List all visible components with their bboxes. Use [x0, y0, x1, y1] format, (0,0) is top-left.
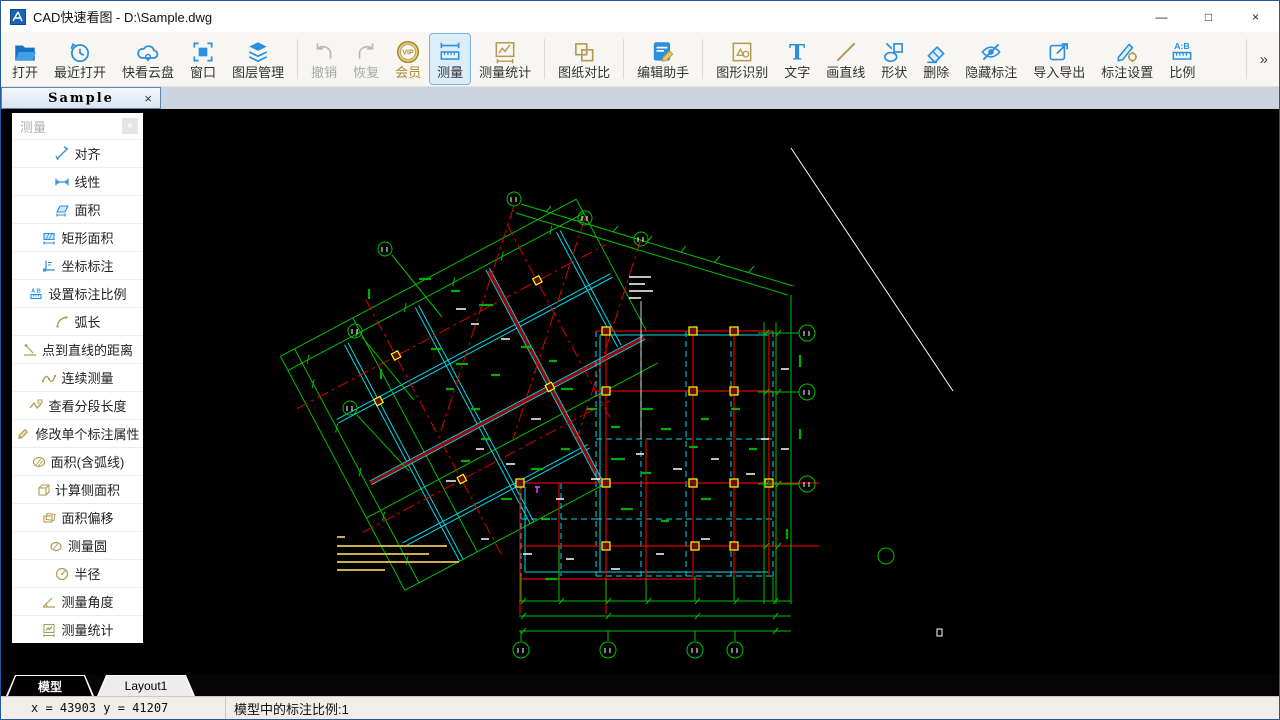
panel-item-label: 面积 [74, 200, 100, 219]
app-window: CAD快速看图 - D:\Sample.dwg — □ × 打开 最近打开 [0, 0, 1280, 720]
minimize-button[interactable]: — [1138, 1, 1185, 32]
sheet-tab-bar: 模型 Layout1 [1, 675, 1279, 696]
layers-icon [245, 39, 271, 65]
window-select-icon [190, 39, 216, 65]
toolbar-button-measure-stats[interactable]: 测量统计 [471, 33, 539, 85]
scale-ratio-icon: A:B [1169, 39, 1195, 65]
toolbar-button-label: 窗口 [190, 65, 216, 80]
area-arc-icon [31, 454, 47, 470]
toolbar-button-label: 编辑助手 [637, 65, 689, 80]
panel-item-label: 矩形面积 [61, 228, 113, 247]
toolbar-separator [623, 39, 624, 79]
toolbar-button-scale[interactable]: A:B 比例 [1161, 33, 1203, 85]
toolbar-button-label: 测量统计 [479, 65, 531, 80]
toolbar-button-text[interactable]: T 文字 [776, 33, 818, 85]
toolbar-button-label: 最近打开 [54, 65, 106, 80]
toolbar-button-label: 撤销 [311, 65, 337, 80]
status-bar: x = 43903 y = 41207 模型中的标注比例:1 [1, 696, 1279, 719]
panel-item-continuous-measure[interactable]: 连续测量 [12, 363, 143, 391]
drawing-compare-icon [571, 39, 597, 65]
annotation-settings-icon [1114, 39, 1140, 65]
measure-stats-icon [492, 39, 518, 65]
panel-item-label: 对齐 [74, 144, 100, 163]
measure-circle-icon [48, 538, 64, 554]
point-line-distance-icon [22, 342, 38, 358]
window-controls: — □ × [1138, 1, 1279, 32]
toolbar-button-label: 画直线 [826, 65, 865, 80]
panel-item-label: 连续测量 [61, 368, 113, 387]
toolbar-button-import-export[interactable]: 导入导出 [1025, 33, 1093, 85]
panel-item-label: 设置标注比例 [48, 284, 126, 303]
toolbar-button-line[interactable]: 画直线 [818, 33, 873, 85]
area-offset-icon [41, 510, 57, 526]
panel-item-align[interactable]: 对齐 [12, 139, 143, 167]
main-toolbar: 打开 最近打开 快看云盘 窗口 [1, 32, 1279, 87]
toolbar-button-compare[interactable]: 图纸对比 [550, 33, 618, 85]
panel-item-label: 半径 [74, 564, 100, 583]
panel-item-area-offset[interactable]: 面积偏移 [12, 503, 143, 531]
svg-text:VIP: VIP [402, 49, 414, 56]
toolbar-separator [1246, 39, 1247, 79]
sheet-tab-label: Layout1 [125, 679, 168, 693]
panel-close-icon[interactable]: × [122, 118, 138, 134]
segment-length-icon [28, 398, 44, 414]
align-measure-icon [54, 146, 70, 162]
toolbar-button-label: 打开 [12, 65, 38, 80]
toolbar-button-cloud[interactable]: 快看云盘 [114, 33, 182, 85]
panel-item-point-to-line[interactable]: 点到直线的距离 [12, 335, 143, 363]
sheet-tab-model[interactable]: 模型 [6, 675, 94, 696]
toolbar-button-label: 恢复 [353, 65, 379, 80]
panel-item-label: 弧长 [74, 312, 100, 331]
toolbar-button-label: 图层管理 [232, 65, 284, 80]
panel-item-label: 测量角度 [61, 592, 113, 611]
panel-item-label: 测量统计 [61, 620, 113, 639]
panel-item-label: 线性 [74, 172, 100, 191]
toolbar-button-label: 快看云盘 [122, 65, 174, 80]
toolbar-button-undo: 撤销 [303, 33, 345, 85]
undo-icon [311, 39, 337, 65]
toolbar-button-label: 比例 [1169, 65, 1195, 80]
arc-length-icon [54, 314, 70, 330]
toolbar-button-redo: 恢复 [345, 33, 387, 85]
panel-item-side-area[interactable]: 计算侧面积 [12, 475, 143, 503]
linear-measure-icon [54, 174, 70, 190]
panel-item-label: 测量圆 [68, 536, 107, 555]
measure-stats-icon [41, 622, 57, 638]
angle-icon [41, 594, 57, 610]
toolbar-separator [702, 39, 703, 79]
document-tab-strip: Sample × [1, 87, 1279, 109]
edit-assistant-icon [650, 39, 676, 65]
toolbar-button-label: 删除 [923, 65, 949, 80]
app-icon [10, 9, 26, 25]
panel-item-label: 面积偏移 [61, 508, 113, 527]
panel-item-label: 查看分段长度 [48, 396, 126, 415]
redo-icon [353, 39, 379, 65]
panel-item-area-with-arc[interactable]: 面积(含弧线) [12, 447, 143, 475]
window-title: CAD快速看图 - D:\Sample.dwg [33, 7, 212, 26]
toolbar-button-shapes[interactable]: 形状 [873, 33, 915, 85]
continuous-measure-icon [41, 370, 57, 386]
close-button[interactable]: × [1232, 1, 1279, 32]
toolbar-button-recent[interactable]: 最近打开 [46, 33, 114, 85]
panel-item-segment-length[interactable]: 查看分段长度 [12, 391, 143, 419]
toolbar-button-label: 测量 [437, 65, 463, 80]
svg-text:T: T [789, 40, 805, 64]
cloud-drive-icon [135, 39, 161, 65]
panel-item-linear[interactable]: 线性 [12, 167, 143, 195]
document-tab-label: Sample [48, 91, 114, 106]
panel-item-label: 点到直线的距离 [42, 340, 133, 359]
recent-clock-icon [67, 39, 93, 65]
shapes-icon [881, 39, 907, 65]
toolbar-separator [544, 39, 545, 79]
panel-item-radius[interactable]: 半径 [12, 559, 143, 587]
panel-item-measure-stats[interactable]: 测量统计 [12, 615, 143, 643]
toolbar-button-recognition[interactable]: 图形识别 [708, 33, 776, 85]
toolbar-button-annotation-settings[interactable]: 标注设置 [1093, 33, 1161, 85]
toolbar-button-label: 文字 [784, 65, 810, 80]
scale-info: 模型中的标注比例:1 [226, 699, 349, 718]
svg-text:A:B: A:B [32, 288, 42, 294]
panel-item-label: 坐标标注 [61, 256, 113, 275]
sheet-tab-label: 模型 [38, 678, 62, 695]
panel-item-measure-angle[interactable]: 测量角度 [12, 587, 143, 615]
panel-item-arc-length[interactable]: 弧长 [12, 307, 143, 335]
toolbar-button-hide-annotation[interactable]: 隐藏标注 [957, 33, 1025, 85]
rect-area-icon [41, 230, 57, 246]
cursor-coordinates: x = 43903 y = 41207 [1, 701, 225, 715]
toolbar-button-layers[interactable]: 图层管理 [224, 33, 292, 85]
import-export-icon [1046, 39, 1072, 65]
panel-item-coordinate-label[interactable]: 坐标标注 [12, 251, 143, 279]
toolbar-button-label: 形状 [881, 65, 907, 80]
vip-badge-icon: VIP [395, 39, 421, 65]
panel-item-modify-label[interactable]: 修改单个标注属性 [12, 419, 143, 447]
toolbar-button-label: 导入导出 [1033, 65, 1085, 80]
toolbar-button-window[interactable]: 窗口 [182, 33, 224, 85]
radius-icon [54, 566, 70, 582]
text-tool-icon: T [784, 39, 810, 65]
edit-label-icon [15, 426, 31, 442]
toolbar-button-label: 会员 [395, 65, 421, 80]
cad-drawing [1, 109, 1279, 675]
panel-item-area[interactable]: 面积 [12, 195, 143, 223]
title-bar: CAD快速看图 - D:\Sample.dwg — □ × [1, 1, 1279, 32]
tab-close-icon[interactable]: × [144, 88, 152, 108]
panel-item-label: 面积(含弧线) [51, 452, 125, 471]
toolbar-button-measure[interactable]: 测量 [429, 33, 471, 85]
measure-ruler-icon [437, 39, 463, 65]
toolbar-button-label: 图纸对比 [558, 65, 610, 80]
drawing-canvas[interactable]: 测量 × 对齐 线性 面积 [1, 109, 1279, 675]
measure-panel-header: 测量 × [12, 113, 143, 139]
measure-panel: 测量 × 对齐 线性 面积 [12, 113, 143, 643]
measure-panel-title: 测量 [20, 117, 46, 136]
side-area-icon [35, 482, 51, 498]
panel-item-label: 修改单个标注属性 [35, 424, 139, 443]
toolbar-overflow-button[interactable]: » [1252, 51, 1276, 68]
panel-item-label: 计算侧面积 [55, 480, 120, 499]
draw-line-icon [833, 39, 859, 65]
toolbar-button-label: 隐藏标注 [965, 65, 1017, 80]
panel-item-measure-circle[interactable]: 测量圆 [12, 531, 143, 559]
document-tab-sample[interactable]: Sample × [1, 87, 161, 109]
eraser-icon [923, 39, 949, 65]
toolbar-button-assistant[interactable]: 编辑助手 [629, 33, 697, 85]
svg-text:A:B: A:B [1175, 40, 1190, 50]
panel-item-set-scale[interactable]: A:B 设置标注比例 [12, 279, 143, 307]
shape-recognition-icon [729, 39, 755, 65]
toolbar-button-label: 标注设置 [1101, 65, 1153, 80]
toolbar-button-label: 图形识别 [716, 65, 768, 80]
hide-annotation-icon [978, 39, 1004, 65]
toolbar-button-open[interactable]: 打开 [4, 33, 46, 85]
toolbar-button-vip[interactable]: VIP 会员 [387, 33, 429, 85]
area-icon [54, 202, 70, 218]
open-folder-icon [12, 39, 38, 65]
panel-item-rect-area[interactable]: 矩形面积 [12, 223, 143, 251]
toolbar-separator [297, 39, 298, 79]
toolbar-button-erase[interactable]: 删除 [915, 33, 957, 85]
sheet-tab-layout1[interactable]: Layout1 [97, 675, 195, 696]
scale-ratio-icon: A:B [28, 286, 44, 302]
maximize-button[interactable]: □ [1185, 1, 1232, 32]
coordinate-icon [41, 258, 57, 274]
